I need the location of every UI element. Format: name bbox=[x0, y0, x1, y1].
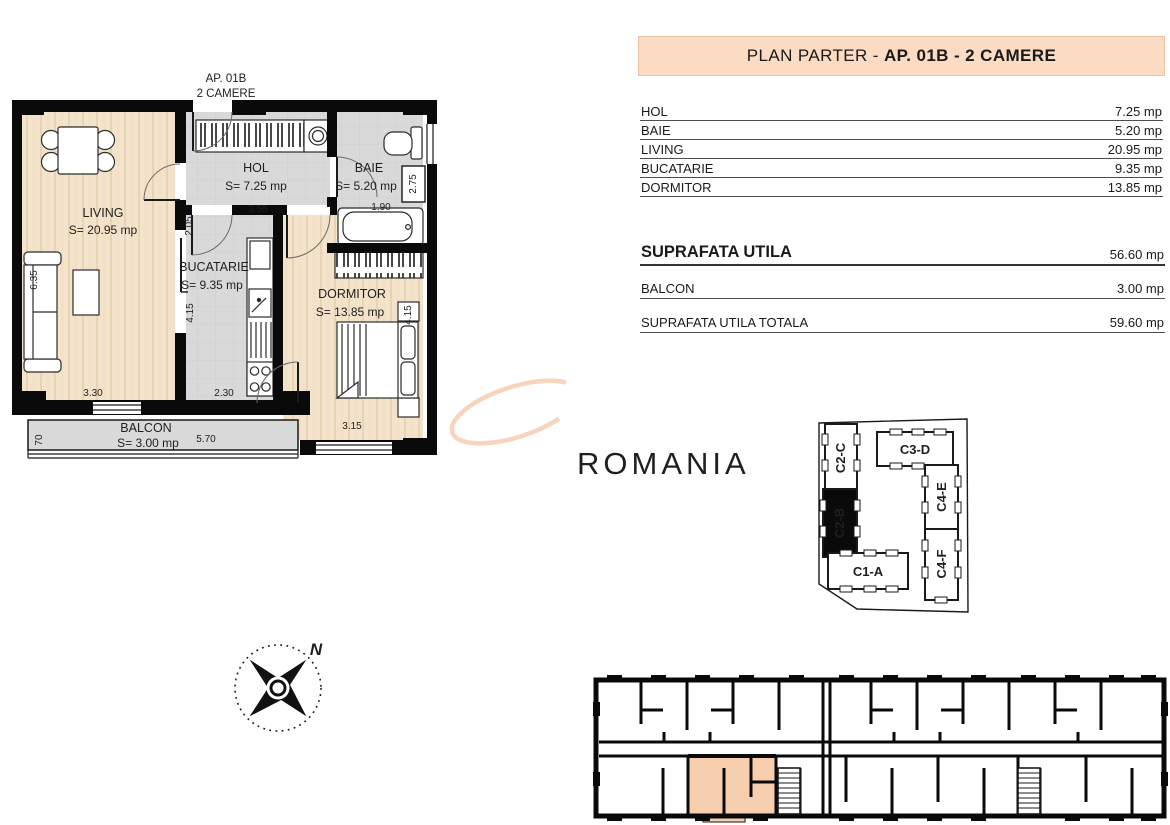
label-dormitor-area: S= 13.85 mp bbox=[316, 305, 385, 319]
label-hol-area: S= 7.25 mp bbox=[225, 179, 287, 193]
plan-apartment-type: 2 CAMERE bbox=[197, 88, 256, 100]
sink-icon bbox=[249, 289, 271, 317]
stairs-icon bbox=[1018, 768, 1040, 814]
total-label: SUPRAFATA UTILA bbox=[641, 243, 792, 262]
closet-icon bbox=[196, 120, 304, 152]
nightstand-icon bbox=[398, 398, 419, 417]
room-area: 5.20 mp bbox=[1115, 123, 1162, 138]
label-bucatarie-area: S= 9.35 mp bbox=[181, 278, 243, 292]
balcony-value: 3.00 mp bbox=[1117, 281, 1164, 296]
window-icon bbox=[93, 402, 141, 414]
dim-balcon-width: 5.70 bbox=[196, 434, 216, 445]
bathtub-icon bbox=[338, 208, 423, 245]
dim-baie-width: 1.90 bbox=[371, 202, 391, 213]
compass-rose-icon: N bbox=[228, 628, 338, 740]
balcony-area-row: BALCON 3.00 mp bbox=[640, 276, 1165, 299]
room-area: 13.85 mp bbox=[1108, 180, 1162, 195]
room-name: DORMITOR bbox=[641, 180, 712, 195]
page-title: PLAN PARTER - AP. 01B - 2 CAMERE bbox=[638, 36, 1165, 76]
site-plan: C2-C C3-D C4-E C2-B C1-A C4-F bbox=[812, 412, 972, 617]
room-name: HOL bbox=[641, 104, 668, 119]
unit-label-c3d: C3-D bbox=[900, 442, 930, 457]
floor-plan-sheet: PLAN PARTER - AP. 01B - 2 CAMERE HOL 7.2… bbox=[0, 0, 1170, 825]
building-level-overview bbox=[593, 672, 1168, 824]
apartment-floorplan: AP. 01B 2 CAMERE bbox=[0, 68, 460, 470]
table-row: LIVING 20.95 mp bbox=[640, 140, 1163, 159]
room-area: 20.95 mp bbox=[1108, 142, 1162, 157]
dim-bucatarie-height: 4.15 bbox=[185, 303, 196, 323]
unit-label-c1a: C1-A bbox=[853, 564, 884, 579]
table-row: BUCATARIE 9.35 mp bbox=[640, 159, 1163, 178]
dim-dormitor-width: 3.15 bbox=[342, 421, 362, 432]
label-baie-area: S= 5.20 mp bbox=[335, 179, 397, 193]
room-area: 9.35 mp bbox=[1115, 161, 1162, 176]
label-living: LIVING bbox=[83, 206, 124, 220]
label-balcon-area: S= 3.00 mp bbox=[117, 436, 179, 450]
dining-table-icon bbox=[58, 127, 98, 174]
grand-total-value: 59.60 mp bbox=[1110, 315, 1164, 330]
table-row: HOL 7.25 mp bbox=[640, 102, 1163, 121]
room-name: BUCATARIE bbox=[641, 161, 713, 176]
dim-baie-height-box: 2.75 bbox=[402, 166, 425, 202]
overview-window-ticks bbox=[593, 675, 1168, 821]
dim-living-width: 3.30 bbox=[83, 388, 103, 399]
room-name: BAIE bbox=[641, 123, 671, 138]
label-hol: HOL bbox=[243, 161, 269, 175]
grand-total-area-row: SUPRAFATA UTILA TOTALA 59.60 mp bbox=[640, 310, 1165, 333]
room-areas-table: HOL 7.25 mp BAIE 5.20 mp LIVING 20.95 mp… bbox=[640, 102, 1163, 197]
room-name: LIVING bbox=[641, 142, 684, 157]
dim-balcon-height: 70 bbox=[34, 434, 45, 446]
unit-label-c4f: C4-F bbox=[934, 549, 949, 578]
label-living-area: S= 20.95 mp bbox=[69, 223, 138, 237]
title-apartment: AP. 01B - 2 CAMERE bbox=[884, 46, 1056, 66]
kitchen-counter-icon bbox=[247, 238, 273, 396]
room-area: 7.25 mp bbox=[1115, 104, 1162, 119]
total-usable-area-row: SUPRAFATA UTILA 56.60 mp bbox=[640, 238, 1165, 266]
label-bucatarie: BUCATARIE bbox=[179, 260, 249, 274]
window-icon bbox=[424, 124, 437, 164]
label-dormitor: DORMITOR bbox=[318, 287, 386, 301]
wardrobe-icon bbox=[335, 252, 423, 278]
unit-label-c2b: C2-B bbox=[832, 508, 847, 538]
dim-dormitor-height: 4.15 bbox=[403, 305, 414, 325]
north-label: N bbox=[310, 640, 323, 659]
total-value: 56.60 mp bbox=[1110, 247, 1164, 262]
label-balcon: BALCON bbox=[120, 421, 171, 435]
grand-total-label: SUPRAFATA UTILA TOTALA bbox=[641, 315, 808, 330]
stove-icon bbox=[247, 362, 273, 396]
dim-living-height: 6.35 bbox=[29, 270, 40, 290]
watermark-swoosh-icon bbox=[445, 368, 586, 456]
dim-baie-height: 2.75 bbox=[408, 174, 419, 194]
watermark-text: ROMANIA bbox=[577, 446, 750, 481]
bed-icon bbox=[337, 322, 418, 398]
plan-apartment-id: AP. 01B bbox=[206, 73, 247, 85]
highlighted-apartment bbox=[688, 756, 776, 814]
balcony-label: BALCON bbox=[641, 281, 694, 296]
sofa-icon bbox=[24, 252, 61, 372]
table-row: DORMITOR 13.85 mp bbox=[640, 178, 1163, 197]
title-prefix: PLAN PARTER - bbox=[747, 46, 884, 66]
watermark: ROMANIA bbox=[420, 350, 750, 490]
stairs-icon bbox=[778, 768, 800, 814]
unit-label-c2c: C2-C bbox=[833, 442, 848, 473]
window-icon bbox=[316, 442, 392, 454]
dim-bucatarie-width: 2.30 bbox=[214, 388, 234, 399]
dim-hol-width: 3.55 bbox=[248, 204, 268, 215]
coffee-table-icon bbox=[73, 270, 99, 315]
unit-label-c4e: C4-E bbox=[934, 482, 949, 512]
label-baie: BAIE bbox=[355, 161, 384, 175]
table-row: BAIE 5.20 mp bbox=[640, 121, 1163, 140]
dim-hol-height: 2.05 bbox=[184, 216, 195, 236]
